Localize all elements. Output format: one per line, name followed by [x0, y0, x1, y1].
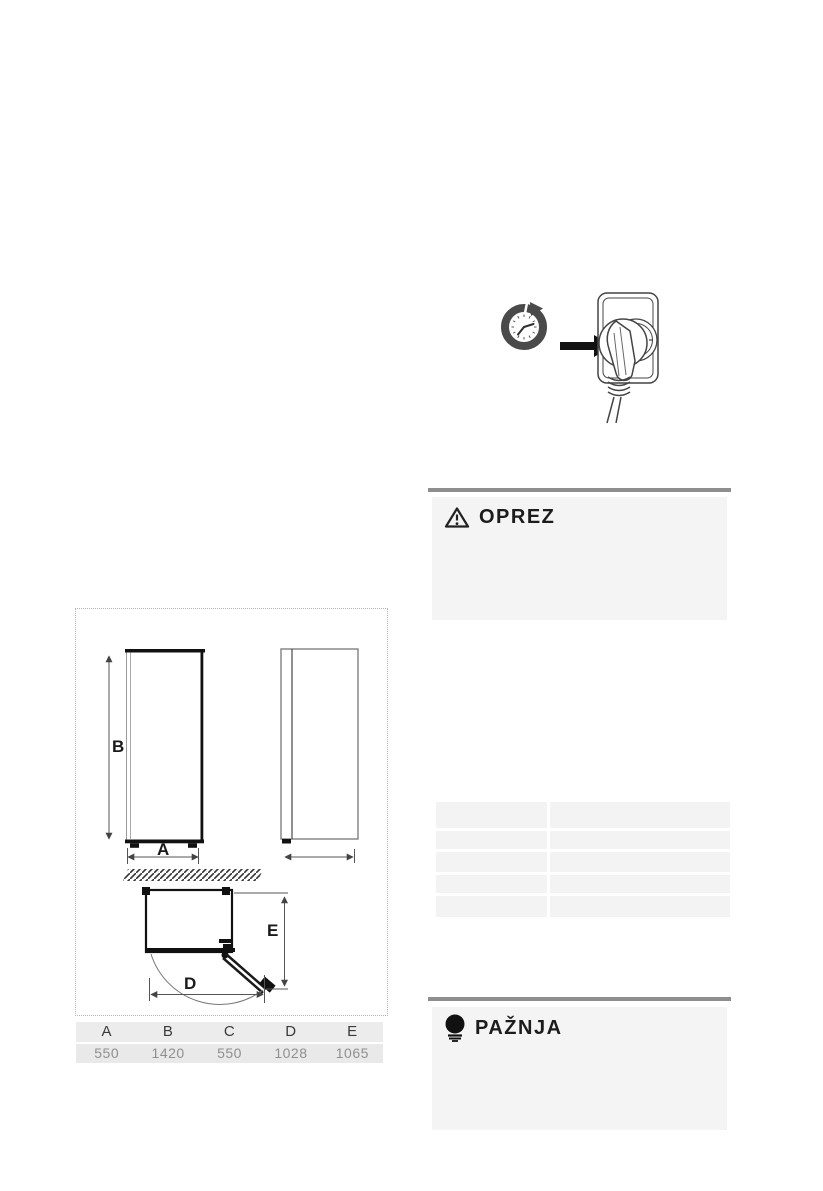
spec-cell	[436, 875, 547, 893]
lightbulb-icon	[444, 1014, 466, 1042]
spec-cell	[436, 852, 547, 872]
spec-cell	[550, 896, 730, 917]
clock-timer-icon	[500, 301, 550, 351]
dim-label-width-open: D	[184, 974, 196, 993]
dim-header-c: C	[199, 1022, 260, 1042]
dimensions-table-value-row: 550 1420 550 1028 1065	[76, 1044, 383, 1063]
spec-cell	[436, 831, 547, 849]
fridge-top-view	[142, 887, 276, 1004]
spec-cell	[550, 802, 730, 828]
dimensions-table-header-row: A B C D E	[76, 1022, 383, 1042]
spec-cell	[436, 896, 547, 917]
caution-divider	[428, 488, 731, 492]
dim-value-e: 1065	[322, 1044, 383, 1063]
dim-header-a: A	[76, 1022, 137, 1042]
manual-page: OPREZ PAŽNJA	[0, 0, 823, 1191]
fridge-front-view	[125, 649, 205, 848]
spec-cell	[550, 875, 730, 893]
dim-value-c: 550	[199, 1044, 260, 1063]
dim-label-height: B	[112, 737, 124, 756]
dim-header-e: E	[322, 1022, 383, 1042]
caution-title: OPREZ	[479, 504, 555, 530]
dimensions-table: A B C D E 550 1420 550 1028 1065	[76, 1022, 383, 1063]
plug-in-socket-icon	[590, 285, 670, 425]
spec-cell	[436, 802, 547, 828]
dim-value-b: 1420	[137, 1044, 198, 1063]
dim-label-depth-open: E	[267, 921, 278, 940]
attention-title: PAŽNJA	[475, 1015, 563, 1041]
dim-header-b: B	[137, 1022, 198, 1042]
dim-value-d: 1028	[260, 1044, 321, 1063]
fridge-side-view	[281, 649, 358, 844]
dim-value-a: 550	[76, 1044, 137, 1063]
caution-box: OPREZ	[432, 497, 727, 620]
dim-header-d: D	[260, 1022, 321, 1042]
spec-cell	[550, 831, 730, 849]
floor-hatch	[123, 869, 263, 881]
attention-divider	[428, 997, 731, 1001]
dim-label-width: A	[157, 840, 169, 859]
warning-triangle-icon	[444, 506, 470, 529]
spec-cell	[550, 852, 730, 872]
dimensions-figure: B A E D	[75, 608, 388, 1016]
spec-table	[436, 802, 730, 917]
attention-box: PAŽNJA	[432, 1007, 727, 1130]
dimensions-figure-drawing: B A E D	[76, 609, 387, 1015]
